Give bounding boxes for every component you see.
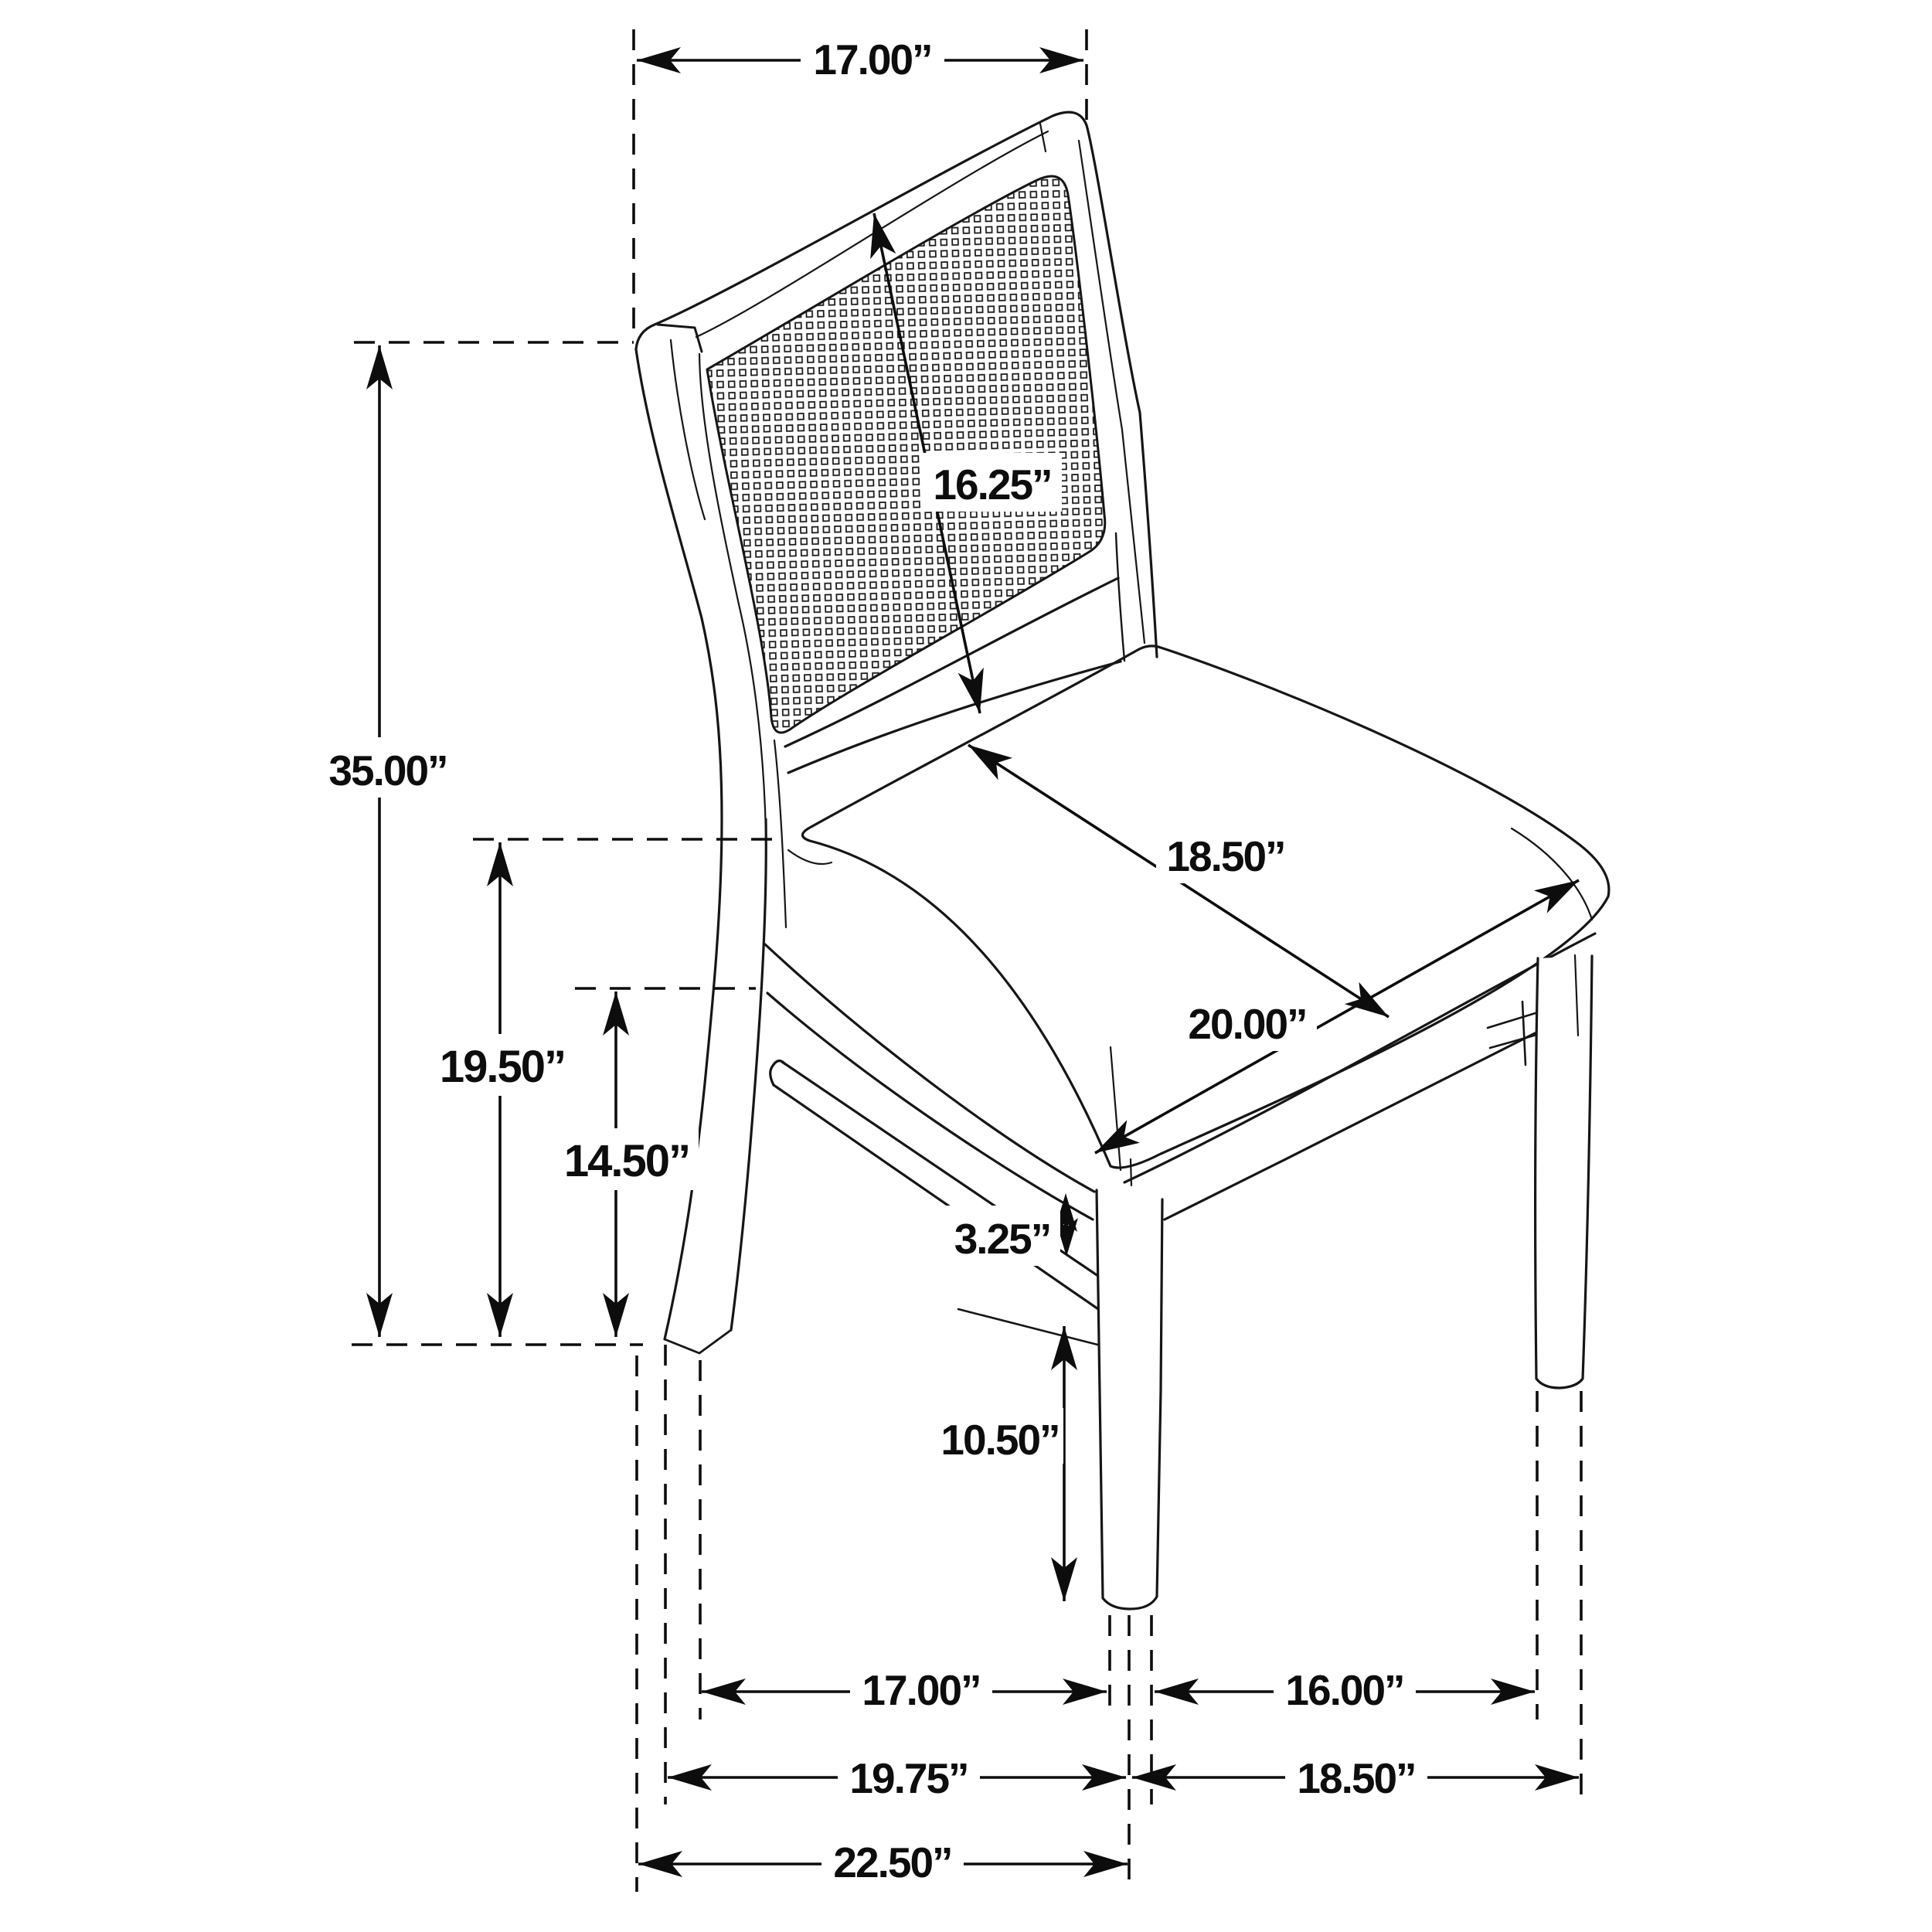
svg-text:17.00”: 17.00”	[862, 1666, 980, 1714]
svg-text:16.00”: 16.00”	[1285, 1666, 1403, 1714]
svg-text:18.50”: 18.50”	[1166, 832, 1284, 880]
svg-text:35.00”: 35.00”	[328, 747, 447, 794]
svg-text:3.25”: 3.25”	[954, 1215, 1051, 1263]
svg-text:16.25”: 16.25”	[933, 461, 1051, 509]
svg-text:17.00”: 17.00”	[813, 36, 931, 83]
svg-text:19.75”: 19.75”	[849, 1754, 968, 1802]
svg-text:18.50”: 18.50”	[1297, 1754, 1415, 1802]
svg-text:20.00”: 20.00”	[1188, 1000, 1306, 1048]
svg-text:10.50”: 10.50”	[940, 1416, 1059, 1464]
svg-text:14.50”: 14.50”	[564, 1136, 689, 1186]
svg-text:22.50”: 22.50”	[833, 1838, 951, 1886]
svg-text:19.50”: 19.50”	[440, 1042, 565, 1092]
